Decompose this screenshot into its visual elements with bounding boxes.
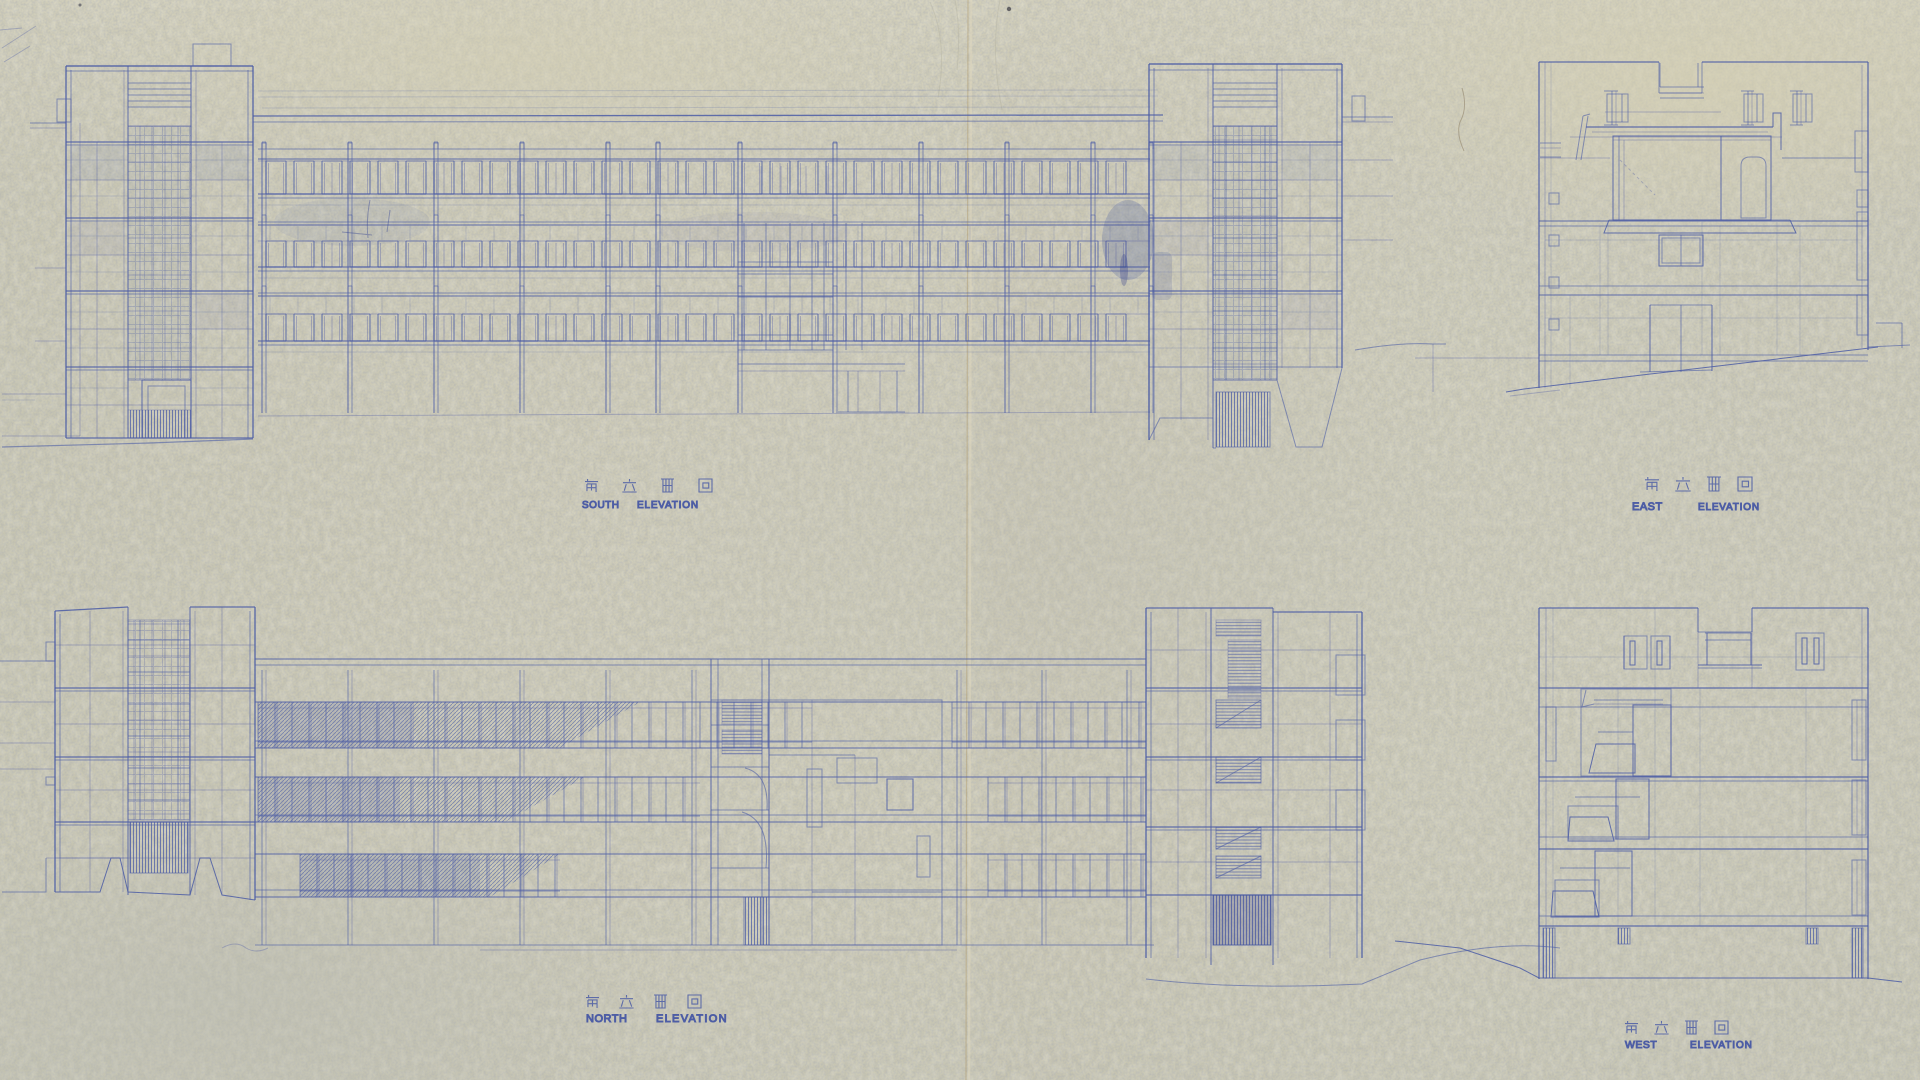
svg-text:ELEVATION: ELEVATION (1698, 502, 1760, 513)
svg-text:WEST: WEST (1625, 1039, 1657, 1051)
svg-text:ELEVATION: ELEVATION (656, 1013, 728, 1025)
svg-text:ELEVATION: ELEVATION (1690, 1040, 1753, 1051)
svg-text:ELEVATION: ELEVATION (637, 500, 699, 511)
svg-text:NORTH: NORTH (586, 1013, 627, 1025)
svg-text:SOUTH: SOUTH (582, 500, 620, 511)
svg-text:EAST: EAST (1632, 501, 1663, 513)
